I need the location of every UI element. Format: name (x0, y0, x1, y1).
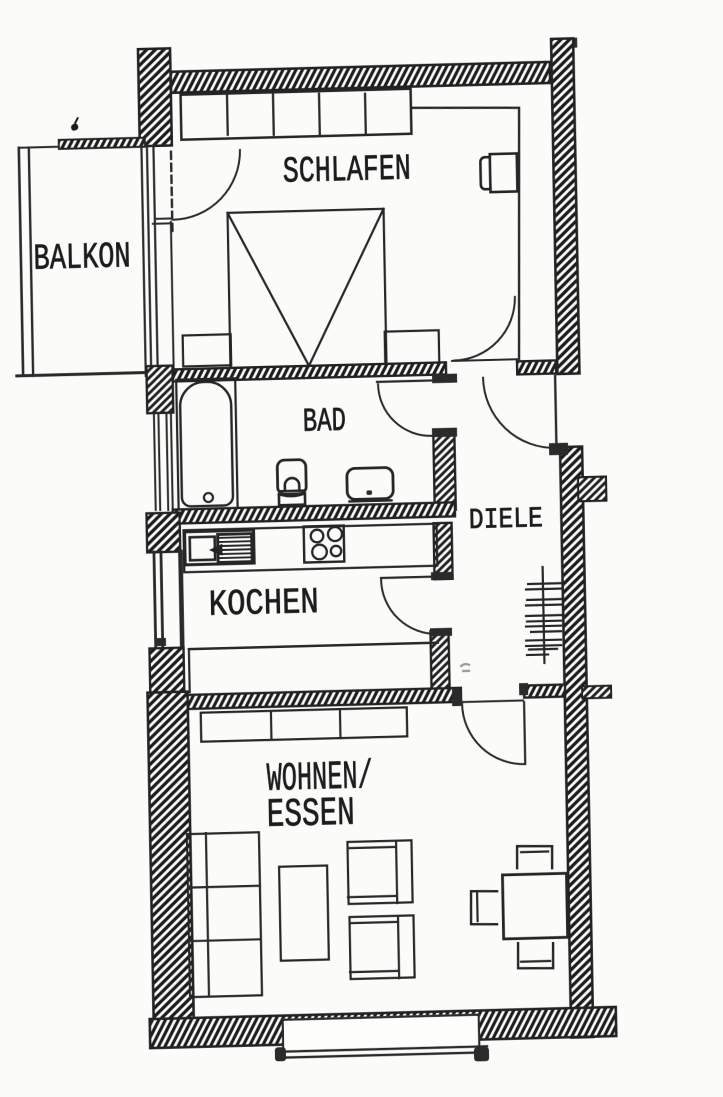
svg-text:DIELE: DIELE (469, 502, 544, 537)
svg-text:BAD: BAD (302, 403, 346, 441)
svg-text:KOCHEN: KOCHEN (208, 582, 319, 626)
svg-text:SCHLAFEN: SCHLAFEN (282, 148, 411, 192)
svg-text:BALKON: BALKON (33, 236, 131, 280)
svg-text:ESSEN: ESSEN (266, 792, 355, 839)
